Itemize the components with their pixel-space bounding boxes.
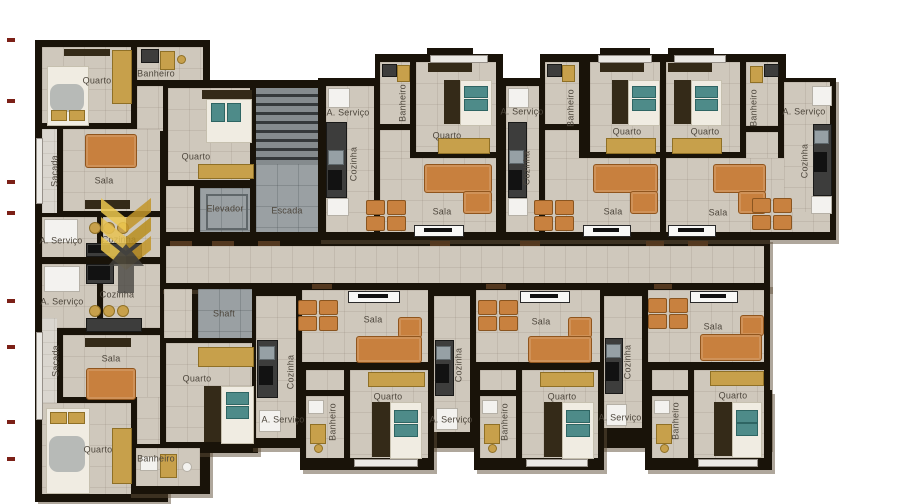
room-label: Quarto bbox=[548, 393, 577, 402]
room-label: Sala bbox=[102, 355, 121, 364]
room-label: Sala bbox=[709, 209, 728, 218]
room-label: Cozinha bbox=[350, 147, 359, 181]
room-label: Banheiro bbox=[399, 84, 408, 122]
room-label: Banheiro bbox=[750, 89, 759, 127]
room-label: Cozinha bbox=[523, 151, 532, 185]
gold-chevron-logo-icon bbox=[100, 198, 152, 293]
room-label: Quarto bbox=[433, 132, 462, 141]
room-label: A. Serviço bbox=[429, 416, 472, 425]
room-label: Banheiro bbox=[329, 403, 338, 441]
room-label: Quarto bbox=[182, 153, 211, 162]
room-label: Shaft bbox=[213, 310, 235, 319]
room-label: Banheiro bbox=[137, 455, 175, 464]
room-label: Banheiro bbox=[501, 403, 510, 441]
room-label: Sala bbox=[604, 208, 623, 217]
room-label: A. Serviço bbox=[40, 298, 83, 307]
room-label: Sala bbox=[95, 177, 114, 186]
room-label: Sacada bbox=[52, 345, 61, 377]
room-label: Escada bbox=[271, 207, 302, 216]
room-label: Quarto bbox=[183, 375, 212, 384]
room-label: Elevador bbox=[206, 205, 243, 214]
room-label: Banheiro bbox=[672, 402, 681, 440]
room-label: A. Serviço bbox=[782, 108, 825, 117]
room-label: Cozinha bbox=[801, 144, 810, 178]
room-label: Banheiro bbox=[137, 70, 175, 79]
room-label: Sala bbox=[704, 323, 723, 332]
room-label: Sala bbox=[532, 318, 551, 327]
room-label: Cozinha bbox=[624, 345, 633, 379]
room-label: Quarto bbox=[83, 77, 112, 86]
room-label: A. Serviço bbox=[598, 414, 641, 423]
room-label: A. Serviço bbox=[500, 108, 543, 117]
room-label: A. Serviço bbox=[261, 416, 304, 425]
room-label: Quarto bbox=[719, 392, 748, 401]
room-label: Quarto bbox=[374, 393, 403, 402]
room-label: Sala bbox=[433, 208, 452, 217]
room-label: Sacada bbox=[51, 155, 60, 187]
room-label: Cozinha bbox=[287, 355, 296, 389]
room-label: A. Serviço bbox=[326, 109, 369, 118]
room-label: Quarto bbox=[84, 446, 113, 455]
room-label: Banheiro bbox=[567, 89, 576, 127]
room-label: Cozinha bbox=[455, 348, 464, 382]
room-label: Sala bbox=[364, 316, 383, 325]
room-label: Quarto bbox=[613, 128, 642, 137]
room-label: A. Serviço bbox=[39, 237, 82, 246]
room-label: Quarto bbox=[691, 128, 720, 137]
floor-plan: QuartoBanheiroQuartoSalaSacadaElevadorEs… bbox=[0, 0, 900, 504]
